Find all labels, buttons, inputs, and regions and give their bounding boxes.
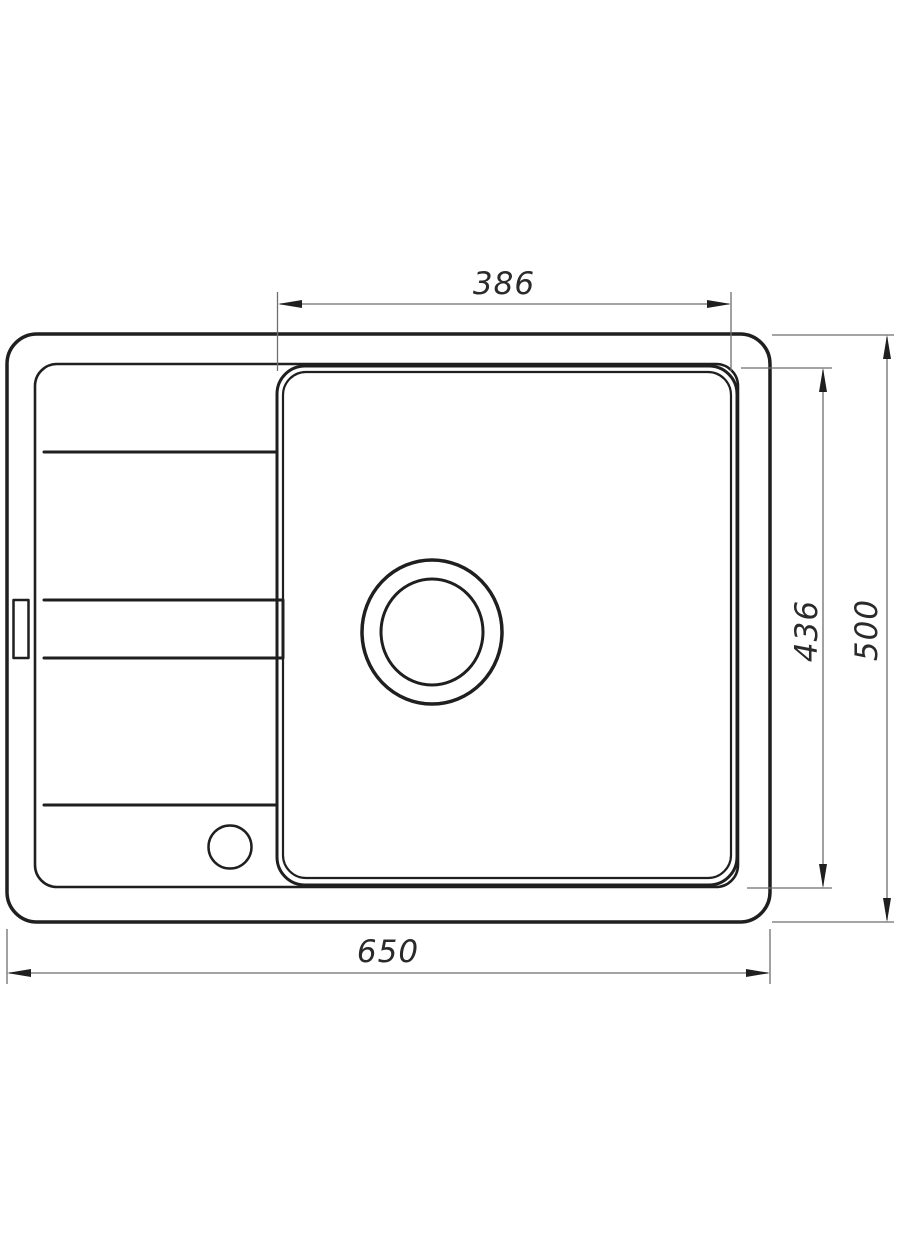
dimension-label-bowl-width: 386 — [473, 266, 535, 302]
bowl-outer-edge — [277, 366, 737, 885]
sink-technical-drawing-page: 386 436 500 650 — [0, 0, 897, 1248]
arrowhead-up-icon — [883, 335, 891, 359]
sink-rim — [35, 364, 738, 887]
sink-outer-edge — [7, 334, 770, 922]
dimension-label-overall-width: 650 — [357, 934, 419, 970]
arrowhead-left-icon — [7, 969, 31, 977]
sink-technical-drawing: 386 436 500 650 — [0, 0, 897, 1248]
arrowhead-right-icon — [746, 969, 770, 977]
dimension-bowl-depth: 436 — [741, 368, 832, 888]
arrowhead-up-icon — [819, 368, 827, 392]
dimension-label-overall-depth: 500 — [849, 599, 885, 661]
arrowhead-down-icon — [883, 898, 891, 922]
dimension-bowl-width: 386 — [278, 266, 732, 371]
arrowhead-left-icon — [278, 300, 302, 308]
bowl-inner-edge — [283, 372, 731, 878]
arrowhead-right-icon — [707, 300, 731, 308]
dimension-overall-width: 650 — [7, 929, 770, 984]
drain-hole-outer — [362, 560, 502, 704]
arrowhead-down-icon — [819, 864, 827, 888]
faucet-hole — [209, 826, 252, 869]
overflow-notch — [14, 600, 29, 658]
drainboard-channel — [44, 600, 283, 658]
drain-hole-inner — [381, 579, 483, 685]
dimension-label-bowl-depth: 436 — [789, 600, 825, 662]
